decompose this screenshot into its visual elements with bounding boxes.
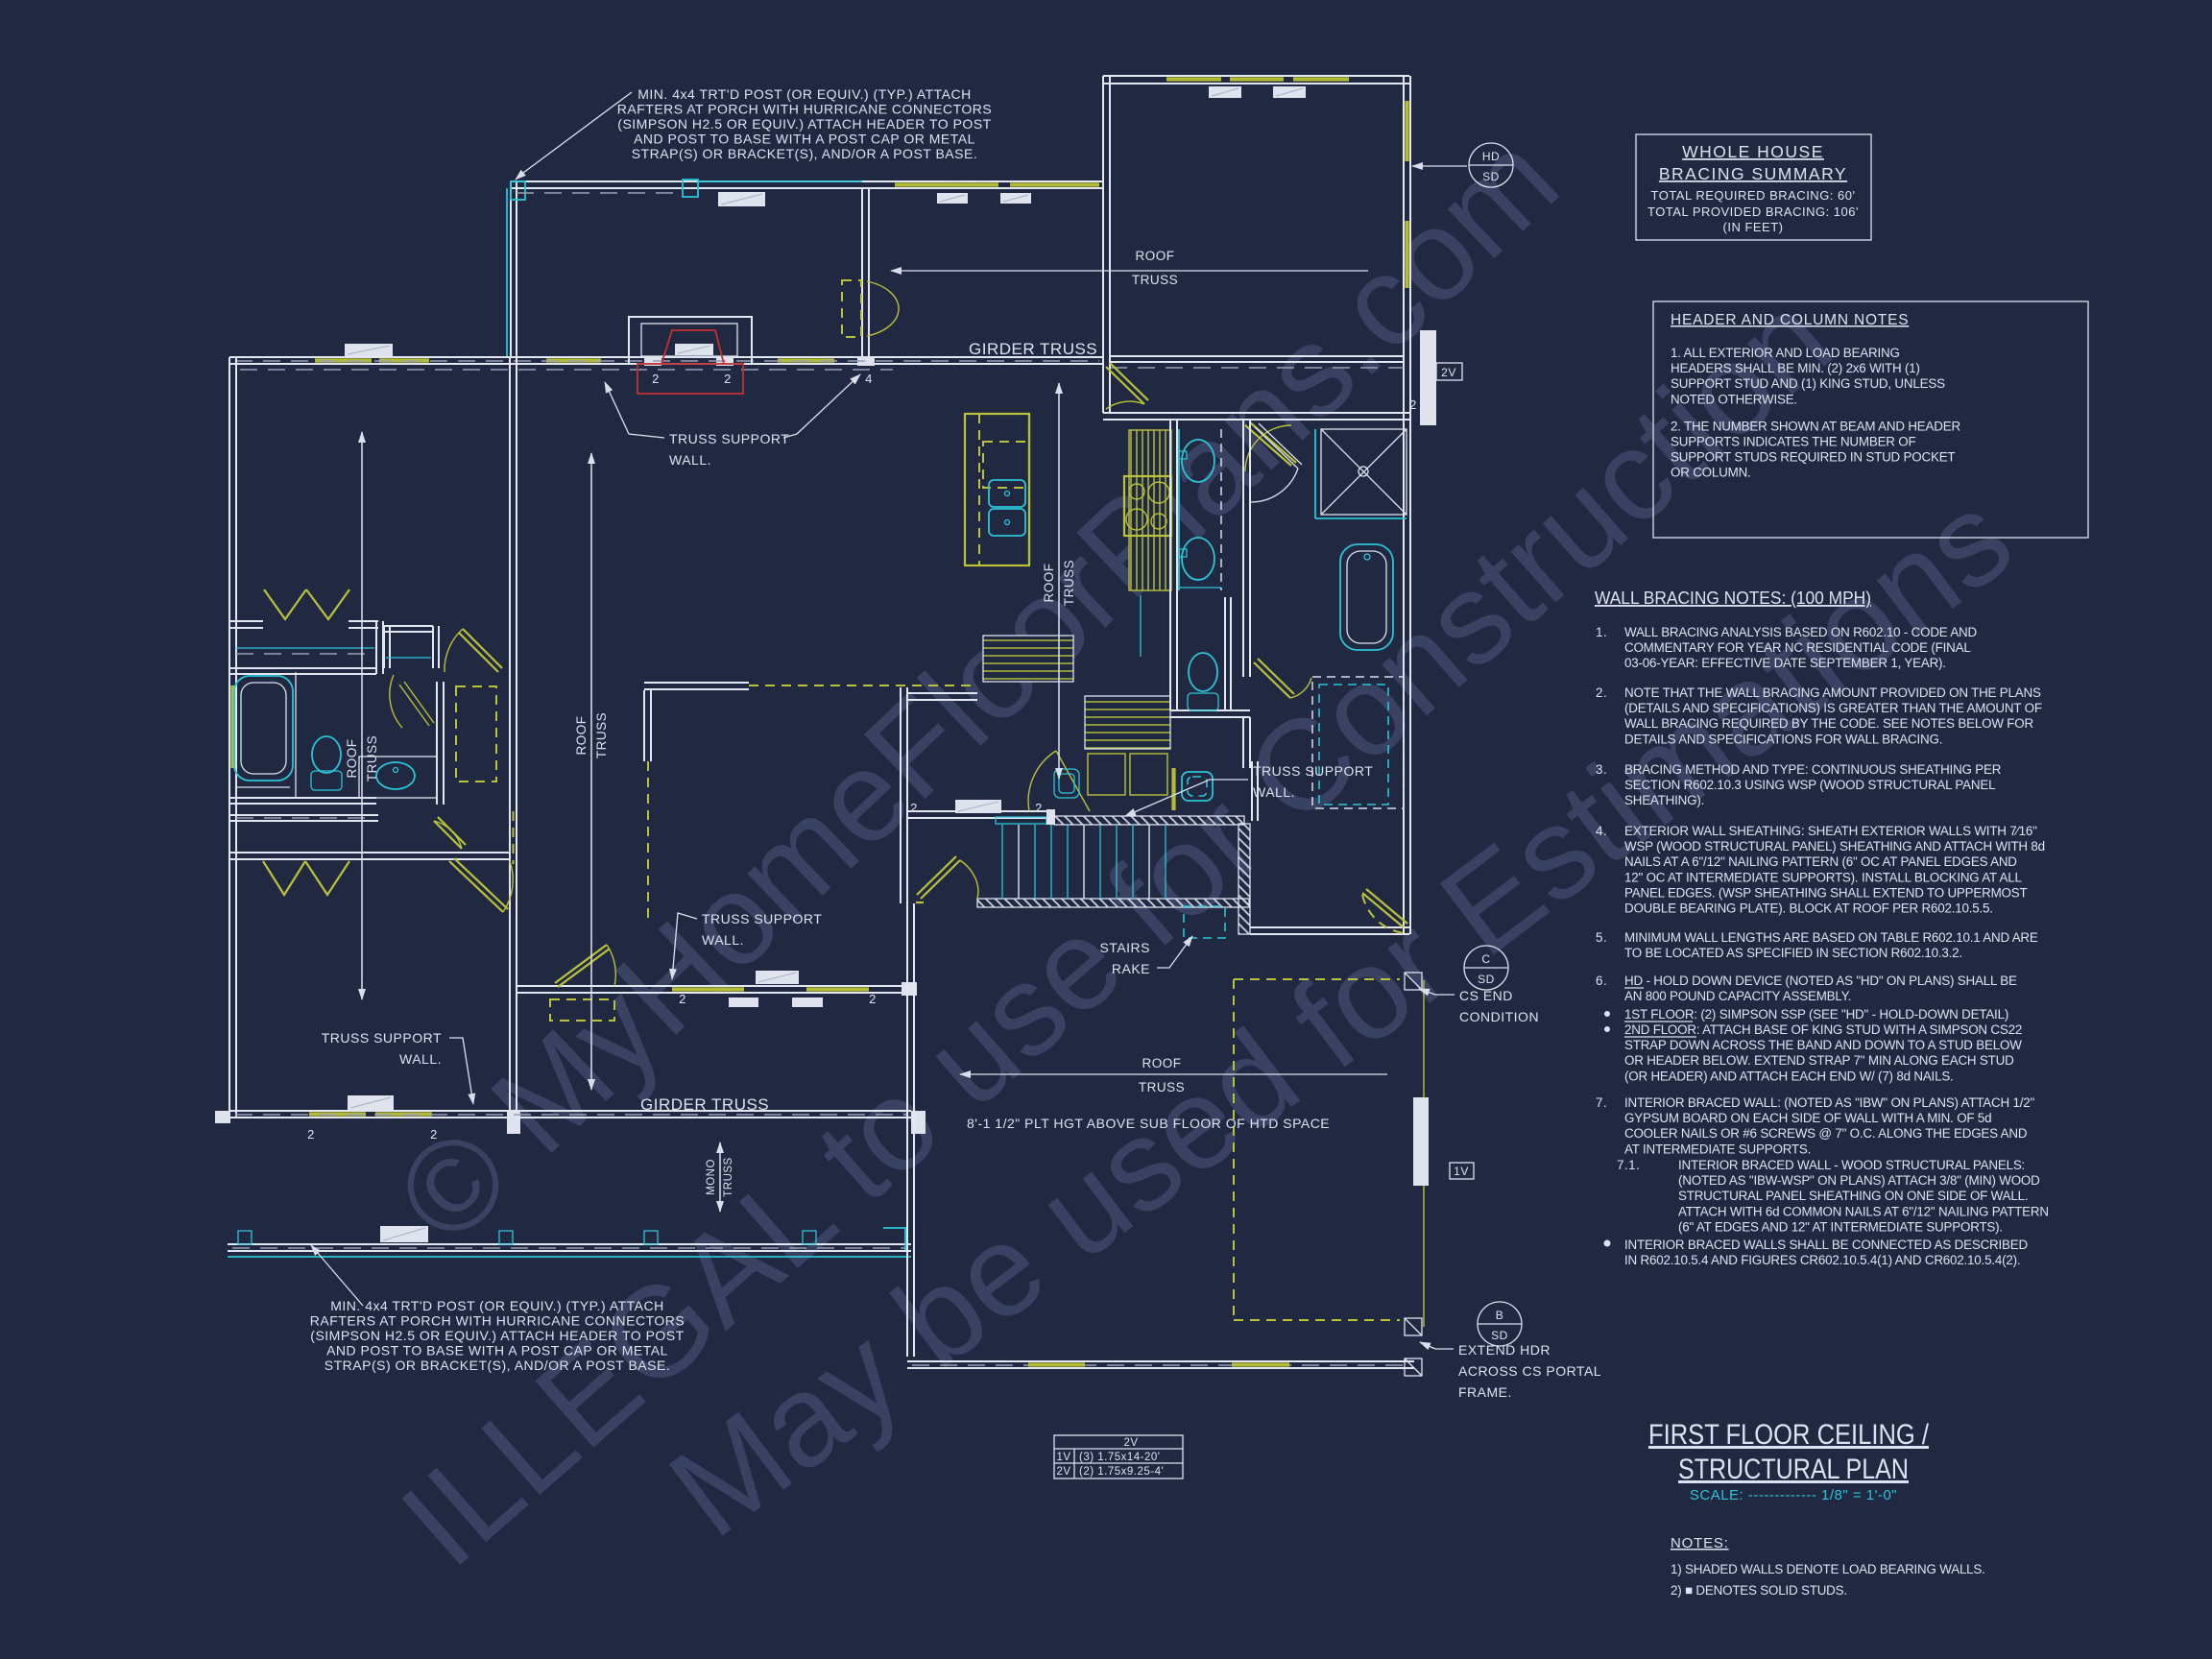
svg-text:1V: 1V	[1454, 1165, 1469, 1178]
svg-text:STAIRS: STAIRS	[1099, 940, 1150, 955]
svg-text:(3) 1.75x14-20': (3) 1.75x14-20'	[1079, 1452, 1161, 1463]
svg-text:WSP (WOOD STRUCTURAL PANEL) SH: WSP (WOOD STRUCTURAL PANEL) SHEATHING AN…	[1624, 839, 2045, 854]
svg-text:TRUSS: TRUSS	[594, 712, 609, 758]
svg-text:COMMENTARY FOR YEAR NC RESIDEN: COMMENTARY FOR YEAR NC RESIDENTIAL CODE …	[1624, 640, 1971, 655]
svg-text:SUPPORTS INDICATES THE NUMBER: SUPPORTS INDICATES THE NUMBER OF	[1671, 435, 1916, 449]
svg-text:STRUCTURAL PANEL SHEATHING ON: STRUCTURAL PANEL SHEATHING ON ONE SIDE O…	[1678, 1189, 2028, 1203]
svg-text:NOTED OTHERWISE.: NOTED OTHERWISE.	[1671, 392, 1797, 406]
svg-text:TRUSS SUPPORT: TRUSS SUPPORT	[322, 1030, 442, 1046]
svg-text:3.: 3.	[1596, 762, 1607, 777]
svg-text:TOTAL PROVIDED BRACING: 106': TOTAL PROVIDED BRACING: 106'	[1647, 204, 1859, 219]
svg-text:1. ALL EXTERIOR AND LOAD BEARI: 1. ALL EXTERIOR AND LOAD BEARING	[1671, 346, 1900, 360]
svg-text:RAFTERS AT PORCH WITH HURRICAN: RAFTERS AT PORCH WITH HURRICANE CONNECTO…	[617, 102, 992, 117]
svg-text:ROOF: ROOF	[345, 739, 359, 779]
svg-text:8'-1 1/2" PLT HGT ABOVE SUB FL: 8'-1 1/2" PLT HGT ABOVE SUB FLOOR OF HTD…	[967, 1116, 1330, 1131]
svg-text:NOTES:: NOTES:	[1671, 1535, 1729, 1551]
svg-text:WALL.: WALL.	[669, 452, 711, 468]
svg-text:TRUSS: TRUSS	[365, 735, 379, 781]
svg-text:WALL BRACING REQUIRED BY THE C: WALL BRACING REQUIRED BY THE CODE. SEE N…	[1624, 716, 2033, 731]
svg-text:WHOLE HOUSE: WHOLE HOUSE	[1682, 142, 1824, 161]
svg-text:PANEL EDGES. (WSP SHEATHING SH: PANEL EDGES. (WSP SHEATHING SHALL EXTEND…	[1624, 885, 2028, 900]
svg-text:EXTEND HDR: EXTEND HDR	[1458, 1342, 1551, 1358]
svg-text:ROOF: ROOF	[574, 716, 589, 756]
svg-text:(IN FEET): (IN FEET)	[1723, 220, 1784, 234]
svg-text:(NOTED AS "IBW-WSP" ON PLANS): (NOTED AS "IBW-WSP" ON PLANS) ATTACH 3/8…	[1678, 1173, 2040, 1188]
svg-text:WALL.: WALL.	[1253, 784, 1295, 800]
svg-text:CONDITION: CONDITION	[1459, 1009, 1539, 1024]
svg-text:OR HEADER BELOW. EXTEND STRAP: OR HEADER BELOW. EXTEND STRAP 7" MIN ALO…	[1624, 1053, 2014, 1068]
svg-text:2: 2	[307, 1127, 315, 1142]
svg-text:(OR HEADER) AND ATTACH EACH EN: (OR HEADER) AND ATTACH EACH END W/ (7) 8…	[1624, 1069, 1954, 1083]
svg-text:2: 2	[910, 801, 918, 815]
svg-text:(2) 1.75x9.25-4': (2) 1.75x9.25-4'	[1079, 1466, 1164, 1478]
svg-text:AT INTERMEDIATE SUPPORTS.: AT INTERMEDIATE SUPPORTS.	[1624, 1142, 1811, 1156]
svg-text:4: 4	[865, 372, 873, 386]
svg-text:1.: 1.	[1596, 625, 1607, 639]
svg-text:B: B	[1496, 1309, 1504, 1322]
svg-text:BRACING SUMMARY: BRACING SUMMARY	[1659, 164, 1847, 183]
svg-text:2: 2	[430, 1127, 438, 1142]
svg-text:NOTE THAT THE WALL BRACING AMO: NOTE THAT THE WALL BRACING AMOUNT PROVID…	[1624, 685, 2041, 700]
svg-text:HEADERS SHALL BE MIN. (2) 2x6: HEADERS SHALL BE MIN. (2) 2x6 WITH (1)	[1671, 361, 1920, 375]
svg-text:DOUBLE BEARING PLATE). BLOCK A: DOUBLE BEARING PLATE). BLOCK AT ROOF PER…	[1624, 902, 1993, 916]
svg-text:WALL.: WALL.	[702, 932, 744, 948]
svg-text:4.: 4.	[1596, 824, 1607, 838]
svg-text:2ND FLOOR: ATTACH BASE OF KING: 2ND FLOOR: ATTACH BASE OF KING STUD WITH…	[1624, 1022, 2022, 1037]
svg-text:FIRST FLOOR CEILING /: FIRST FLOOR CEILING /	[1648, 1419, 1930, 1451]
svg-text:6.: 6.	[1596, 974, 1607, 988]
svg-text:5.: 5.	[1596, 930, 1607, 945]
svg-text:OR COLUMN.: OR COLUMN.	[1671, 466, 1751, 480]
svg-text:C: C	[1481, 952, 1490, 966]
svg-text:STRAP DOWN ACROSS THE BAND AND: STRAP DOWN ACROSS THE BAND AND DOWN TO A…	[1624, 1038, 2022, 1052]
svg-text:STRAP(S) OR BRACKET(S), AND/OR: STRAP(S) OR BRACKET(S), AND/OR A POST BA…	[632, 146, 977, 161]
svg-text:MIN. 4x4 TRT'D POST (OR EQUIV.: MIN. 4x4 TRT'D POST (OR EQUIV.) (TYP.) A…	[330, 1298, 664, 1313]
svg-text:COOLER NAILS OR #6 SCREWS @ 7": COOLER NAILS OR #6 SCREWS @ 7" O.C. ALON…	[1624, 1126, 2028, 1141]
svg-text:2: 2	[724, 372, 732, 386]
svg-text:2V: 2V	[1056, 1466, 1070, 1478]
svg-text:TOTAL REQUIRED BRACING: 60': TOTAL REQUIRED BRACING: 60'	[1651, 188, 1856, 203]
svg-text:1V: 1V	[1056, 1452, 1070, 1463]
svg-text:WALL BRACING NOTES: (100 MPH): WALL BRACING NOTES: (100 MPH)	[1595, 588, 1871, 608]
svg-text:INTERIOR BRACED WALL - WOOD ST: INTERIOR BRACED WALL - WOOD STRUCTURAL P…	[1678, 1158, 2025, 1172]
svg-text:SUPPORT STUD AND (1) KING STUD: SUPPORT STUD AND (1) KING STUD, UNLESS	[1671, 376, 1945, 391]
svg-text:INTERIOR BRACED WALLS SHALL BE: INTERIOR BRACED WALLS SHALL BE CONNECTED…	[1624, 1238, 2029, 1252]
svg-text:TRUSS: TRUSS	[1139, 1080, 1185, 1094]
svg-text:RAFTERS AT PORCH WITH HURRICAN: RAFTERS AT PORCH WITH HURRICANE CONNECTO…	[310, 1313, 685, 1329]
svg-text:SD: SD	[1478, 973, 1495, 986]
svg-text:03-06-YEAR: EFFECTIVE DATE SEP: 03-06-YEAR: EFFECTIVE DATE SEPTEMBER 1, …	[1624, 656, 1946, 670]
svg-text:GYPSUM BOARD ON EACH SIDE OF W: GYPSUM BOARD ON EACH SIDE OF WALL WITH A…	[1624, 1111, 1991, 1125]
svg-text:2: 2	[679, 992, 686, 1006]
svg-text:(6" AT EDGES AND 12" AT INTERM: (6" AT EDGES AND 12" AT INTERMEDIATE SUP…	[1678, 1219, 2003, 1234]
svg-text:2. THE NUMBER SHOWN AT BEAM AN: 2. THE NUMBER SHOWN AT BEAM AND HEADER	[1671, 419, 1960, 433]
svg-text:1) SHADED WALLS DENOTE LOAD BE: 1) SHADED WALLS DENOTE LOAD BEARING WALL…	[1671, 1562, 1985, 1576]
svg-text:SD: SD	[1491, 1329, 1508, 1342]
svg-text:SCALE: ------------- 1/8" = 1': SCALE: ------------- 1/8" = 1'-0"	[1690, 1487, 1897, 1503]
svg-text:AND POST TO BASE WITH A POST C: AND POST TO BASE WITH A POST CAP OR META…	[326, 1343, 668, 1358]
svg-text:STRAP(S) OR BRACKET(S), AND/OR: STRAP(S) OR BRACKET(S), AND/OR A POST BA…	[325, 1358, 670, 1373]
svg-text:ROOF: ROOF	[1142, 1056, 1182, 1070]
svg-text:ATTACH WITH 6d COMMON NAILS AT: ATTACH WITH 6d COMMON NAILS AT 6"/12" NA…	[1678, 1204, 2049, 1218]
svg-text:2: 2	[1409, 397, 1417, 412]
svg-text:TRUSS: TRUSS	[1132, 273, 1178, 287]
svg-text:7.: 7.	[1596, 1095, 1607, 1110]
svg-text:BRACING METHOD AND TYPE: CONTI: BRACING METHOD AND TYPE: CONTINUOUS SHEA…	[1624, 762, 2002, 777]
svg-text:AN 800 POUND CAPACITY ASSEMBLY: AN 800 POUND CAPACITY ASSEMBLY.	[1624, 989, 1851, 1003]
svg-text:2.: 2.	[1596, 685, 1607, 700]
svg-text:RAKE: RAKE	[1112, 961, 1150, 976]
svg-text:2: 2	[1035, 801, 1043, 815]
svg-text:HD - HOLD DOWN DEVICE (NOTED A: HD - HOLD DOWN DEVICE (NOTED AS "HD" ON …	[1624, 974, 2017, 988]
svg-text:TRUSS SUPPORT: TRUSS SUPPORT	[1253, 763, 1373, 779]
svg-text:SECTION R602.10.3 USING WSP (W: SECTION R602.10.3 USING WSP (WOOD STRUCT…	[1624, 778, 1995, 792]
svg-text:ROOF: ROOF	[1042, 564, 1056, 603]
svg-text:MIN. 4x4 TRT'D POST (OR EQUIV.: MIN. 4x4 TRT'D POST (OR EQUIV.) (TYP.) A…	[637, 86, 972, 102]
svg-text:WALL BRACING ANALYSIS BASED ON: WALL BRACING ANALYSIS BASED ON R602.10 -…	[1624, 625, 1978, 639]
svg-text:2: 2	[869, 992, 877, 1006]
svg-text:2) ■ DENOTES SOLID STUDS.: 2) ■ DENOTES SOLID STUDS.	[1671, 1583, 1847, 1598]
svg-text:GIRDER TRUSS: GIRDER TRUSS	[640, 1095, 769, 1114]
svg-text:DETAILS AND SPECIFICATIONS FOR: DETAILS AND SPECIFICATIONS FOR WALL BRAC…	[1624, 732, 1942, 746]
svg-text:TRUSS: TRUSS	[723, 1157, 734, 1196]
svg-text:HEADER AND COLUMN NOTES: HEADER AND COLUMN NOTES	[1671, 312, 1909, 328]
svg-text:WALL.: WALL.	[399, 1051, 442, 1067]
svg-text:TRUSS SUPPORT: TRUSS SUPPORT	[669, 431, 789, 446]
svg-text:2V: 2V	[1441, 366, 1456, 379]
svg-text:7.1.: 7.1.	[1617, 1158, 1640, 1172]
svg-text:CS END: CS END	[1459, 988, 1513, 1003]
svg-text:GIRDER TRUSS: GIRDER TRUSS	[969, 340, 1097, 358]
svg-text:ROOF: ROOF	[1136, 249, 1175, 263]
svg-text:(SIMPSON H2.5 OR EQUIV.) ATTAC: (SIMPSON H2.5 OR EQUIV.) ATTACH HEADER T…	[310, 1328, 684, 1343]
svg-text:IN R602.10.5.4 AND FIGURES CR6: IN R602.10.5.4 AND FIGURES CR602.10.5.4(…	[1624, 1253, 2020, 1267]
svg-text:SD: SD	[1482, 170, 1500, 183]
svg-text:2: 2	[652, 372, 660, 386]
svg-text:FRAME.: FRAME.	[1458, 1384, 1512, 1400]
svg-text:2V: 2V	[1123, 1437, 1138, 1449]
svg-text:MONO: MONO	[706, 1159, 717, 1195]
svg-text:INTERIOR BRACED WALL: (NOTED A: INTERIOR BRACED WALL: (NOTED AS "IBW" ON…	[1624, 1095, 2035, 1110]
svg-text:EXTERIOR WALL SHEATHING: SHEAT: EXTERIOR WALL SHEATHING: SHEATH EXTERIOR…	[1624, 824, 2037, 838]
svg-text:SUPPORT STUDS REQUIRED IN STUD: SUPPORT STUDS REQUIRED IN STUD POCKET	[1671, 450, 1955, 465]
svg-text:TRUSS SUPPORT: TRUSS SUPPORT	[702, 911, 822, 926]
svg-text:MINIMUM WALL LENGTHS ARE BASED: MINIMUM WALL LENGTHS ARE BASED ON TABLE …	[1624, 930, 2038, 945]
svg-text:TO BE LOCATED AS SPECIFIED IN: TO BE LOCATED AS SPECIFIED IN SECTION R6…	[1624, 946, 1962, 960]
svg-text:(SIMPSON H2.5 OR EQUIV.) ATTAC: (SIMPSON H2.5 OR EQUIV.) ATTACH HEADER T…	[617, 116, 991, 132]
svg-text:AND POST TO BASE WITH A POST C: AND POST TO BASE WITH A POST CAP OR META…	[634, 132, 975, 147]
svg-text:ACROSS CS PORTAL: ACROSS CS PORTAL	[1458, 1363, 1601, 1379]
svg-text:STRUCTURAL PLAN: STRUCTURAL PLAN	[1678, 1454, 1909, 1485]
svg-text:(DETAILS AND SPECIFICATIONS) I: (DETAILS AND SPECIFICATIONS) IS GREATER …	[1624, 701, 2042, 715]
svg-text:SHEATHING).: SHEATHING).	[1624, 793, 1704, 807]
svg-text:1ST FLOOR: (2) SIMPSON SSP (SE: 1ST FLOOR: (2) SIMPSON SSP (SEE "HD" - H…	[1624, 1007, 2008, 1022]
svg-text:HD: HD	[1482, 150, 1500, 163]
svg-text:NAILS AT A 6"/12" NAILING PATT: NAILS AT A 6"/12" NAILING PATTERN (6" OC…	[1624, 854, 2017, 869]
svg-text:12" OC AT INTERMEDIATE SUPPORT: 12" OC AT INTERMEDIATE SUPPORTS). INSTAL…	[1624, 870, 2022, 884]
svg-text:TRUSS: TRUSS	[1062, 560, 1076, 606]
